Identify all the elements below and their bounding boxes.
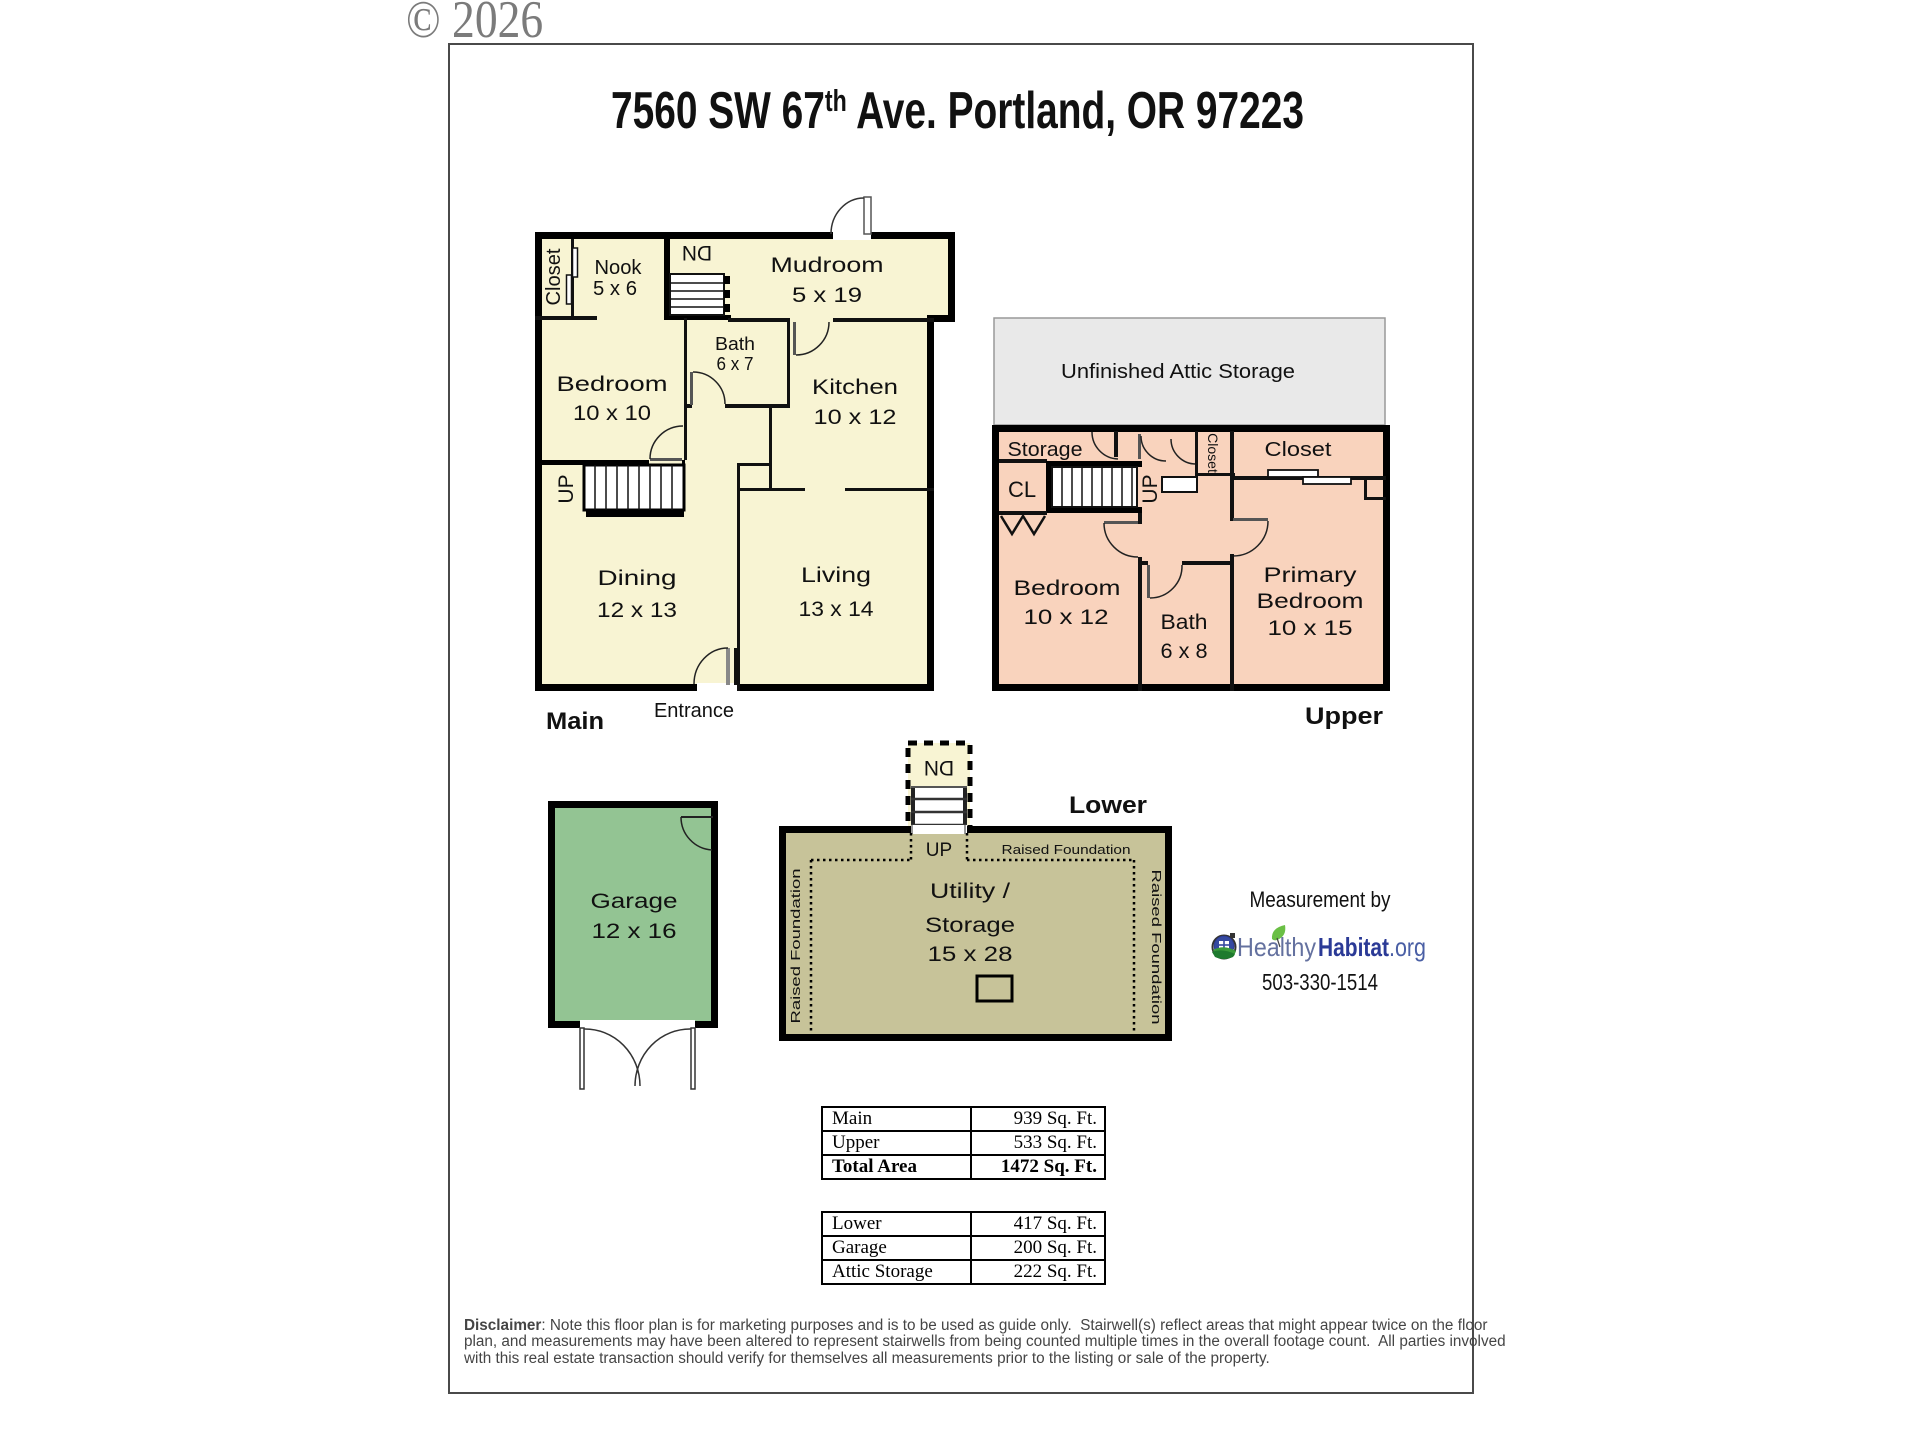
svg-text:Primary: Primary (1264, 564, 1358, 587)
svg-text:10 x 10: 10 x 10 (573, 402, 651, 425)
svg-text:Bath: Bath (1161, 611, 1208, 634)
svg-text:12 x 16: 12 x 16 (592, 920, 677, 943)
svg-text:6 x 7: 6 x 7 (717, 354, 754, 374)
svg-text:Bedroom: Bedroom (1257, 590, 1364, 613)
svg-text:Closet: Closet (1205, 433, 1221, 473)
svg-text:503-330-1514: 503-330-1514 (1262, 969, 1378, 995)
svg-text:Main: Main (546, 708, 604, 735)
svg-text:Kitchen: Kitchen (812, 376, 898, 399)
svg-text:UP: UP (926, 840, 952, 861)
svg-text:12 x 13: 12 x 13 (597, 599, 677, 622)
svg-text:Habitat: Habitat (1318, 932, 1389, 962)
svg-text:Nook: Nook (595, 257, 643, 279)
svg-text:5 x 6: 5 x 6 (593, 278, 637, 300)
svg-text:Entrance: Entrance (654, 700, 734, 722)
svg-text:10 x 12: 10 x 12 (1024, 606, 1109, 629)
svg-text:Bath: Bath (715, 334, 755, 354)
svg-text:13 x 14: 13 x 14 (799, 598, 874, 621)
svg-text:Storage: Storage (925, 914, 1015, 937)
svg-text:DN: DN (682, 241, 712, 264)
svg-text:Garage: Garage (591, 890, 678, 913)
svg-text:Upper: Upper (1305, 703, 1383, 730)
svg-text:10 x 15: 10 x 15 (1268, 617, 1353, 640)
svg-text:Closet: Closet (1265, 439, 1333, 461)
svg-text:Living: Living (801, 564, 871, 587)
svg-text:10 x 12: 10 x 12 (814, 406, 897, 429)
svg-text:Unfinished Attic Storage: Unfinished Attic Storage (1061, 361, 1295, 383)
svg-text:Closet: Closet (543, 248, 565, 305)
svg-text:Bedroom: Bedroom (557, 373, 668, 396)
svg-text:Measurement by: Measurement by (1250, 887, 1391, 912)
svg-text:15 x 28: 15 x 28 (928, 943, 1013, 966)
svg-text:Bedroom: Bedroom (1014, 577, 1121, 600)
svg-text:Lower: Lower (1069, 792, 1147, 819)
svg-text:Mudroom: Mudroom (771, 254, 884, 277)
svg-text:Raised Foundation: Raised Foundation (788, 869, 803, 1024)
svg-text:6 x 8: 6 x 8 (1161, 640, 1208, 663)
svg-text:Utility /: Utility / (930, 880, 1010, 903)
svg-text:Raised Foundation: Raised Foundation (1149, 870, 1164, 1025)
svg-text:Storage: Storage (1008, 439, 1083, 461)
svg-text:Dining: Dining (598, 567, 677, 590)
svg-text:.org: .org (1389, 932, 1426, 962)
svg-text:DN: DN (924, 756, 954, 779)
svg-text:Raised Foundation: Raised Foundation (1002, 842, 1131, 857)
svg-text:UP: UP (1139, 474, 1162, 503)
svg-text:UP: UP (555, 474, 578, 503)
svg-text:CL: CL (1008, 477, 1036, 502)
svg-text:5 x 19: 5 x 19 (792, 284, 862, 307)
